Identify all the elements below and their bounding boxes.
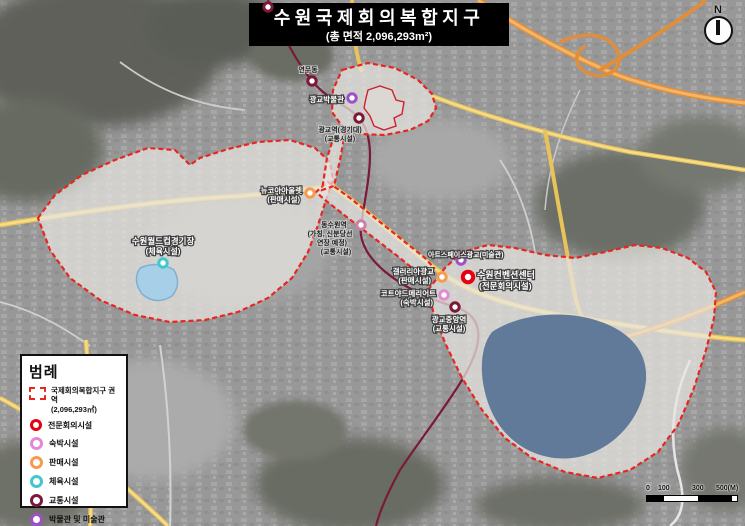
scale-tick-100: 100 bbox=[658, 485, 670, 492]
page-title: 수원국제회의복합지구 bbox=[274, 7, 485, 28]
legend-item-label: 숙박시설 bbox=[49, 438, 78, 449]
yeonmu-label: 연무동 bbox=[298, 65, 318, 74]
legend-title: 범례 bbox=[29, 361, 120, 382]
artspace-label: 아트스페이스광교(미술관) bbox=[428, 250, 504, 259]
gwanggyo-station-cat: (교통시설) bbox=[325, 134, 355, 143]
page-subtitle: (총 면적 2,096,293m²) bbox=[326, 29, 433, 43]
legend-item-sports: 체육시설 bbox=[30, 475, 120, 488]
scale-bar-segments bbox=[646, 495, 738, 502]
planned-station-icon bbox=[357, 221, 365, 229]
legend-item-label: 박물관 및 미술관 bbox=[49, 514, 105, 525]
stadium-category: (체육시설) bbox=[146, 246, 181, 256]
legend-item-transport: 교통시설 bbox=[30, 494, 120, 507]
north-indicator: N bbox=[701, 4, 735, 45]
legend-item-label: 전문회의시설 bbox=[48, 420, 92, 431]
galleria-label: 갤러리아광교 bbox=[393, 266, 434, 276]
galleria-category: (판매시설) bbox=[398, 275, 431, 285]
dongsuwon-category: (교통시설) bbox=[321, 247, 351, 256]
scale-tick-0: 0 bbox=[646, 485, 650, 492]
legend-item-conference: 전문회의시설 bbox=[30, 419, 120, 431]
compass-icon bbox=[704, 16, 733, 45]
retail-icon bbox=[306, 189, 314, 197]
lodging-icon bbox=[440, 291, 448, 299]
transport-station-icon bbox=[355, 114, 363, 122]
legend-item-lodging: 숙박시설 bbox=[30, 437, 120, 450]
marriott-label: 코트야드메리어트 bbox=[381, 288, 436, 298]
map-screenshot: 수원국제회의복합지구 (총 면적 2,096,293m²) 수원월드컵경기장 (… bbox=[0, 0, 745, 526]
stadium-shape bbox=[136, 264, 177, 300]
dongsuwon-line3: 연장 예정) bbox=[317, 238, 347, 247]
stadium-label: 수원월드컵경기장 bbox=[132, 236, 195, 246]
scale-bar: 0 100 300 500(M) bbox=[646, 485, 738, 505]
dongsuwon-line2: (가칭, 신분당선 bbox=[308, 229, 353, 238]
sports-icon bbox=[30, 475, 43, 488]
museum-icon bbox=[348, 94, 356, 102]
jungang-station-label: 광교중앙역 bbox=[432, 314, 467, 324]
legend-item-label: 교통시설 bbox=[49, 495, 78, 506]
retail-icon bbox=[438, 273, 446, 281]
museum-label: 광교박물관 bbox=[310, 94, 345, 104]
scale-tick-500: 500(M) bbox=[716, 485, 738, 492]
legend-item-label: 체육시설 bbox=[49, 476, 78, 487]
transport-station-icon bbox=[264, 3, 272, 11]
transport-station-icon bbox=[451, 303, 459, 311]
museum-icon bbox=[30, 513, 43, 526]
legend: 범례 국제회의복합지구 권역 (2,096,293㎡) 전문회의시설 숙박시설 … bbox=[20, 354, 128, 508]
zone-boundary-icon bbox=[29, 387, 46, 400]
zone-label: 국제회의복합지구 권역 bbox=[51, 386, 115, 404]
jungang-station-cat: (교통시설) bbox=[433, 323, 466, 333]
conference-icon bbox=[30, 419, 42, 431]
convention-label: 수원컨벤션센터 bbox=[477, 269, 535, 280]
zone-area: (2,096,293㎡) bbox=[51, 405, 97, 414]
sports-icon bbox=[159, 259, 167, 267]
conference-icon bbox=[463, 272, 473, 282]
transport-icon bbox=[30, 494, 43, 507]
legend-item-label: 판매시설 bbox=[49, 457, 78, 468]
convention-category: (전문회의시설) bbox=[479, 281, 532, 291]
dongsuwon-line1: 동수원역 bbox=[321, 220, 347, 229]
legend-item-museum: 박물관 및 미술관 bbox=[30, 513, 120, 526]
legend-zone-item: 국제회의복합지구 권역 (2,096,293㎡) bbox=[29, 386, 120, 414]
title-banner: 수원국제회의복합지구 (총 면적 2,096,293m²) bbox=[249, 3, 509, 46]
outlet-category: (판매시설) bbox=[267, 194, 300, 204]
transport-station-icon bbox=[308, 77, 316, 85]
scale-tick-300: 300 bbox=[692, 485, 704, 492]
retail-icon bbox=[30, 456, 43, 469]
north-label: N bbox=[701, 4, 735, 16]
outlet-label: 뉴코아아울렛 bbox=[261, 185, 302, 195]
gwanggyo-station-label: 광교역(경기대) bbox=[318, 125, 361, 134]
lodging-icon bbox=[30, 437, 43, 450]
marriott-category: (숙박시설) bbox=[400, 297, 433, 307]
legend-item-retail: 판매시설 bbox=[30, 456, 120, 469]
